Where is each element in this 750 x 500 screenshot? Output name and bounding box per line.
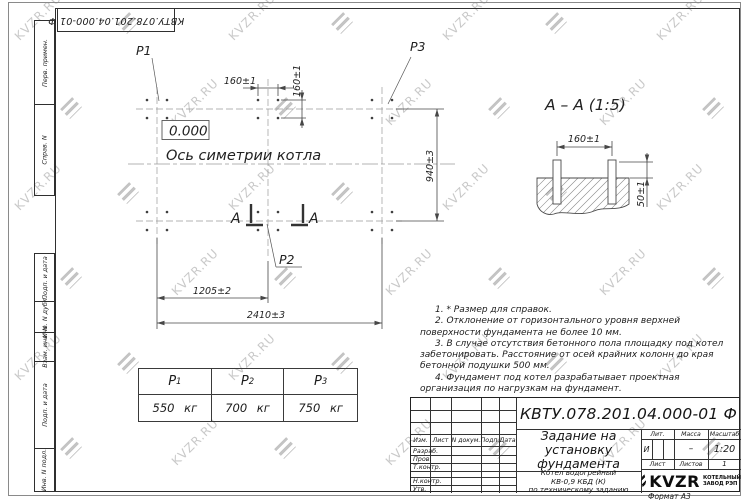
sig-utv: Утв.: [411, 485, 453, 493]
frame-cell-perv-primen: Перв. примен.: [35, 21, 54, 105]
load-point-p2-label: P2: [279, 252, 295, 267]
title-block-product: Котел водогрейный КВ-0,9 КБД (К) по техн…: [516, 471, 641, 493]
section-view-title: А – А (1:5): [544, 96, 626, 114]
mass-header: Масса: [674, 429, 708, 439]
note-2: 2. Отклонение от горизонтального уровня …: [420, 316, 738, 339]
dim-160-horizontal: 160±1: [224, 76, 256, 87]
dim-1205: 1205±2: [193, 286, 231, 297]
title-block: КВТУ.078.201.04.000-01 Ф Изм. Лист N док…: [410, 397, 740, 492]
plan-centerlines: [128, 79, 455, 258]
drawing-sheet: KVZR.RUKVZR.RUKVZR.RUKVZR.RUKVZR.RUKVZR.…: [0, 0, 750, 500]
sig-razrab: Разраб.: [411, 446, 453, 455]
frame-cell-vzam-inv: Взам. инв. N: [35, 333, 54, 362]
section-letter-right: А: [308, 211, 319, 227]
frame-cell-podp-data-2: Подп. и дата: [35, 362, 54, 449]
frame-cell-sprav-n: Справ. N: [35, 105, 54, 195]
sig-nkontr: Н.контр.: [411, 477, 453, 485]
frame-cell-inv-podl: Инв. N подл.: [35, 449, 54, 491]
col-header-izm: Изм.: [411, 434, 430, 446]
frame-cell-podp-data-1: Подп. и дата: [35, 254, 54, 302]
sheet-label: Лист: [641, 459, 674, 469]
load-table-header-p2: P2: [212, 369, 285, 395]
title-block-doc-title: Задание на установку фундамента: [516, 429, 641, 471]
section-dim-50: 50±1: [636, 181, 647, 207]
sig-prov: Пров.: [411, 455, 453, 463]
dim-940: 940±3: [425, 150, 436, 182]
section-view-dimension-arrows: [557, 145, 649, 186]
lit-value: И: [641, 439, 652, 459]
load-table-value-p3: 750 кг: [284, 395, 357, 421]
col-header-ndokum: N докум.: [451, 434, 481, 446]
scale-header: Масштаб: [708, 429, 741, 439]
dim-2410: 2410±3: [247, 310, 285, 321]
company-name: KVZR: [649, 472, 700, 491]
frame-strip-lower: Подп. и дата Инв. N дубл. Взам. инв. N П…: [34, 253, 55, 492]
company-logo: KVZR КОТЕЛЬНЫЙ ЗАВОД РЭП: [641, 469, 741, 493]
lit-header: Лит.: [641, 429, 674, 439]
section-letter-left: А: [230, 211, 241, 227]
mass-value: –: [674, 439, 708, 459]
sig-tkontr: Т.контр.: [411, 463, 453, 471]
scale-value: 1:20: [708, 439, 741, 459]
col-header-podp: Подп.: [481, 434, 499, 446]
col-header-list: Лист: [430, 434, 451, 446]
sheets-value: 1: [708, 459, 741, 469]
load-table-header-p1: P1: [139, 369, 212, 395]
note-3: 3. В случае отсутствия бетонного пола пл…: [420, 339, 738, 373]
load-point-p1-label: P1: [136, 43, 152, 58]
kvzr-logo-icon: [641, 472, 646, 491]
frame-strip-upper: Перв. примен. Справ. N: [34, 20, 55, 196]
section-view-concrete: [492, 160, 676, 224]
title-block-designation: КВТУ.078.201.04.000-01 Ф: [516, 398, 741, 429]
load-table-header-p3: P3: [284, 369, 357, 395]
section-dim-160: 160±1: [568, 134, 600, 145]
format-label: Формат А3: [648, 492, 691, 500]
col-header-data: Дата: [499, 434, 516, 446]
rotated-designation-text: КВТУ.078.201.04.000-01 Ф: [48, 15, 184, 26]
technical-notes: 1. * Размер для справок. 2. Отклонение о…: [420, 305, 738, 395]
boiler-axis-label: Ось симетрии котла: [166, 148, 321, 164]
anchor-bolt-right: [608, 160, 616, 204]
load-table: P1 P2 P3 550 кг 700 кг 750 кг: [138, 368, 358, 422]
load-point-p3-label: P3: [410, 39, 426, 54]
note-4: 4. Фундамент под котел разрабатывает про…: [420, 373, 738, 396]
anchor-bolt-dots: [146, 99, 394, 232]
note-1: 1. * Размер для справок.: [420, 305, 738, 316]
rotated-designation-stamp: КВТУ.078.201.04.000-01 Ф: [57, 8, 175, 32]
company-subtitle: КОТЕЛЬНЫЙ ЗАВОД РЭП: [703, 475, 741, 487]
dim-160-vertical: 160±1: [292, 65, 303, 97]
elevation-mark-value: 0.000: [169, 124, 208, 140]
load-table-value-p2: 700 кг: [212, 395, 285, 421]
load-table-value-p1: 550 кг: [139, 395, 212, 421]
anchor-bolt-left: [553, 160, 561, 204]
sheets-label: Листов: [674, 459, 708, 469]
section-cut-marks: [246, 204, 308, 225]
